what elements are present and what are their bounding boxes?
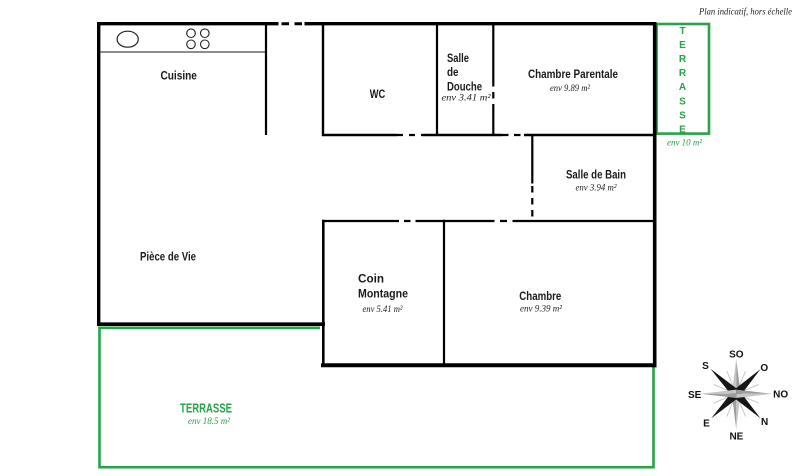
- svg-text:Chambre Parentale: Chambre Parentale: [528, 69, 618, 81]
- svg-text:NE: NE: [729, 432, 743, 443]
- svg-text:env 3.41 m²: env 3.41 m²: [442, 93, 491, 103]
- svg-text:env 9.39 m²: env 9.39 m²: [520, 305, 562, 315]
- svg-text:Douche: Douche: [447, 81, 482, 93]
- svg-text:SE: SE: [688, 390, 702, 401]
- svg-text:E: E: [679, 125, 686, 136]
- svg-text:env 9.89 m²: env 9.89 m²: [550, 84, 590, 94]
- svg-text:S: S: [702, 361, 709, 372]
- svg-text:E: E: [679, 40, 686, 51]
- svg-text:Salle de Bain: Salle de Bain: [566, 170, 626, 182]
- svg-text:env 3.94 m²: env 3.94 m²: [576, 184, 617, 194]
- svg-text:WC: WC: [370, 89, 386, 101]
- svg-text:Chambre: Chambre: [519, 291, 561, 303]
- svg-text:SO: SO: [729, 350, 744, 361]
- svg-text:NO: NO: [773, 390, 788, 401]
- svg-text:de: de: [447, 67, 459, 79]
- svg-text:Salle: Salle: [447, 53, 469, 65]
- svg-text:Plan indicatif, hors échelle: Plan indicatif, hors échelle: [698, 7, 792, 18]
- svg-text:env 10 m²: env 10 m²: [667, 139, 702, 149]
- svg-text:Montagne: Montagne: [358, 288, 408, 300]
- svg-text:Cuisine: Cuisine: [160, 71, 197, 83]
- svg-text:Pièce de Vie: Pièce de Vie: [140, 252, 196, 264]
- svg-text:A: A: [679, 82, 686, 93]
- svg-text:env 5.41 m²: env 5.41 m²: [363, 305, 403, 315]
- svg-text:O: O: [760, 363, 768, 374]
- svg-text:S: S: [679, 110, 686, 121]
- svg-text:E: E: [703, 419, 710, 430]
- svg-text:T: T: [679, 26, 685, 37]
- svg-text:R: R: [679, 68, 687, 79]
- svg-text:env 18.5 m²: env 18.5 m²: [188, 417, 230, 427]
- svg-text:Coin: Coin: [358, 274, 384, 286]
- svg-text:N: N: [761, 417, 768, 428]
- svg-text:TERRASSE: TERRASSE: [180, 401, 232, 415]
- svg-text:R: R: [679, 54, 687, 65]
- svg-text:S: S: [679, 96, 686, 107]
